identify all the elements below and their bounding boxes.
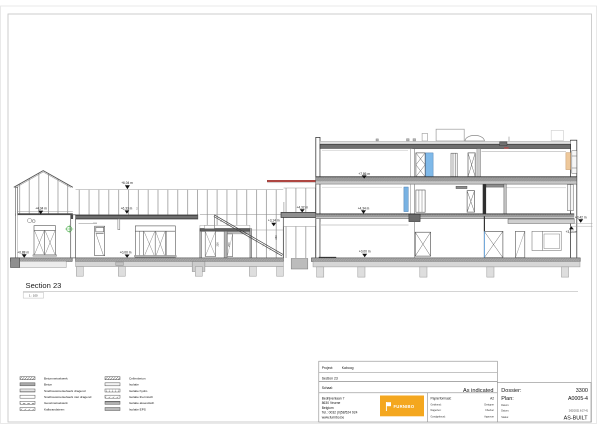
svg-text:Isolatie thermisch: Isolatie thermisch: [129, 395, 153, 399]
svg-text:Dossier:: Dossier:: [501, 388, 522, 394]
svg-text:Snelbouwmetselwerk dragend: Snelbouwmetselwerk dragend: [44, 389, 86, 393]
svg-text:+0,00 m: +0,00 m: [359, 250, 371, 254]
svg-text:+0,00 m: +0,00 m: [120, 251, 132, 255]
svg-text:Section 23: Section 23: [322, 376, 338, 380]
svg-text:Snelbouwmetselwerk niet dragen: Snelbouwmetselwerk niet dragend: [44, 395, 92, 399]
svg-text:2/02/2021 8:27:41: 2/02/2021 8:27:41: [569, 410, 589, 413]
svg-text:1 : 100: 1 : 100: [29, 294, 38, 298]
svg-text:Belgium: Belgium: [322, 406, 334, 410]
svg-text:Gevelmetselwerk: Gevelmetselwerk: [44, 401, 68, 405]
svg-text:Plan:: Plan:: [501, 396, 514, 402]
svg-text:Bedrijvenlaan 7: Bedrijvenlaan 7: [322, 396, 345, 400]
svg-text:www.furnibo.be: www.furnibo.be: [322, 416, 345, 420]
svg-text:Checker: Checker: [485, 409, 494, 412]
svg-text:Kalkzandsteen: Kalkzandsteen: [44, 407, 65, 411]
svg-text:Betonmetselwerk: Betonmetselwerk: [44, 377, 68, 381]
svg-text:Section 23: Section 23: [26, 281, 62, 290]
svg-text:3300: 3300: [576, 388, 588, 394]
svg-text:8630 Veurne: 8630 Veurne: [322, 401, 341, 405]
svg-text:+4,34 m: +4,34 m: [358, 206, 370, 210]
svg-text:250: 250: [215, 242, 219, 247]
svg-text:Isolatie: Isolatie: [129, 383, 139, 387]
svg-text:A0005-4: A0005-4: [568, 396, 588, 402]
svg-text:Getekend:: Getekend:: [431, 404, 442, 407]
svg-text:Papierformaat:: Papierformaat:: [431, 396, 452, 400]
svg-text:+6,04 m: +6,04 m: [121, 181, 133, 185]
svg-text:250: 250: [275, 235, 278, 240]
svg-text:As indicated: As indicated: [463, 388, 493, 394]
svg-text:250: 250: [227, 242, 231, 247]
svg-text:+4,32 m: +4,32 m: [296, 205, 308, 209]
svg-text:AS-BUILT: AS-BUILT: [564, 416, 589, 422]
svg-text:Isolatie EPS: Isolatie EPS: [129, 407, 146, 411]
svg-text:Kaboog: Kaboog: [342, 366, 354, 370]
svg-text:+4,34 m: +4,34 m: [35, 207, 47, 211]
svg-text:Goedgekeurd:: Goedgekeurd:: [431, 415, 446, 418]
svg-text:+0,88 m: +0,88 m: [17, 250, 29, 254]
svg-text:Designer: Designer: [484, 404, 494, 407]
svg-text:Nagezien:: Nagezien:: [431, 409, 442, 412]
svg-text:+3,42 m: +3,42 m: [575, 215, 587, 219]
svg-text:+7,86 m: +7,86 m: [358, 172, 370, 176]
svg-text:Approver: Approver: [484, 415, 494, 418]
svg-text:Datum:: Datum:: [501, 410, 509, 413]
svg-text:+6,33 m: +6,33 m: [121, 207, 133, 211]
svg-text:Project:: Project:: [322, 366, 334, 370]
svg-text:Datum:: Datum:: [501, 404, 509, 407]
svg-text:Isolatie akoestisch: Isolatie akoestisch: [129, 401, 155, 405]
svg-text:Tel.: 0032 (0)58/524 924: Tel.: 0032 (0)58/524 924: [322, 411, 358, 415]
svg-text:+3,14 m: +3,14 m: [566, 230, 578, 234]
svg-text:Status:: Status:: [501, 416, 509, 419]
svg-text:Isolatie hydro: Isolatie hydro: [129, 389, 148, 393]
svg-text:Cellenbeton: Cellenbeton: [129, 377, 146, 381]
svg-text:Beton: Beton: [44, 383, 52, 387]
svg-text:+3,14 m: +3,14 m: [268, 219, 280, 223]
svg-text:FURNIBO: FURNIBO: [394, 404, 415, 409]
svg-text:A2: A2: [490, 396, 494, 400]
svg-text:Schaal:: Schaal:: [322, 386, 333, 390]
